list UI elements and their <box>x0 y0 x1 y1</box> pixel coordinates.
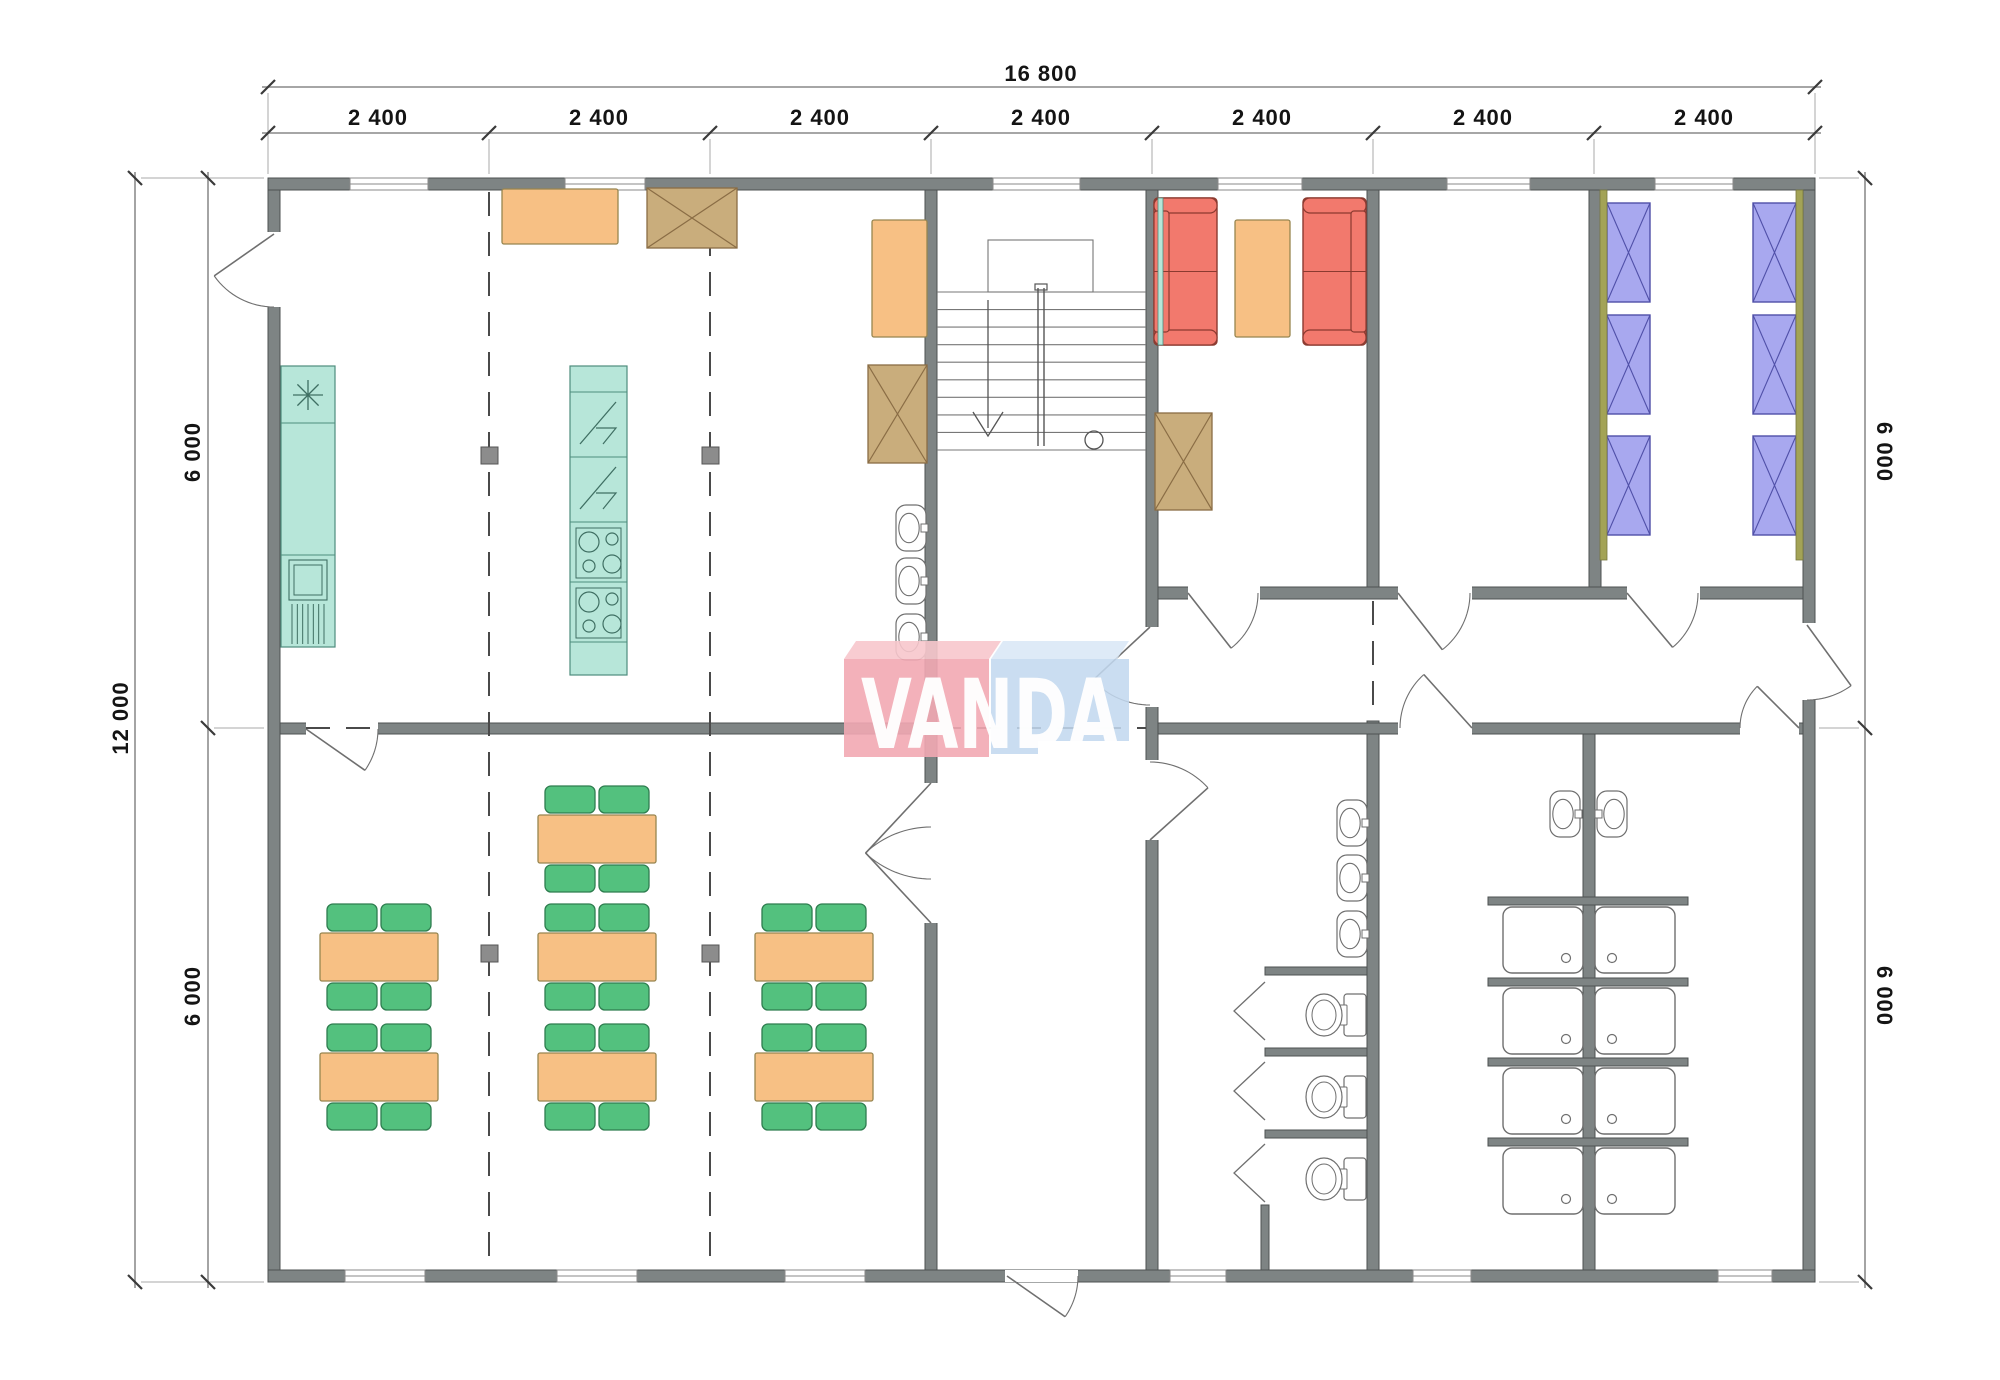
washbasin-tap <box>921 633 928 641</box>
dining-table <box>538 815 656 863</box>
chair <box>545 786 595 813</box>
chair <box>327 904 377 931</box>
door-opening <box>1740 721 1799 736</box>
dining-table <box>755 1053 873 1101</box>
kitchen-unit <box>570 366 627 675</box>
wall <box>1488 1138 1688 1146</box>
door-opening <box>1144 760 1160 840</box>
headboard-strip <box>1600 190 1607 560</box>
floor-plan-canvas: VANDA 16 800 2 400 2 400 2 400 2 400 2 4… <box>0 0 2000 1380</box>
grid-axis-marker <box>702 945 719 962</box>
shower-tray <box>1503 1148 1583 1214</box>
shower-tray <box>1595 988 1675 1054</box>
shower-tray <box>1595 1068 1675 1134</box>
watermark-block-blue-top <box>991 641 1129 659</box>
chair <box>816 1103 866 1130</box>
washbasin-tap <box>921 524 928 532</box>
washbasin-tap <box>1595 810 1602 818</box>
washbasin-tap <box>1362 930 1369 938</box>
dining-table <box>320 933 438 981</box>
wall <box>268 190 280 1270</box>
shower-tray <box>1503 907 1583 973</box>
shower-tray <box>1503 988 1583 1054</box>
washbasin-tap <box>1362 874 1369 882</box>
dim-bay-6: 2 400 <box>1453 105 1513 131</box>
door-opening <box>1144 627 1160 707</box>
table <box>872 220 927 337</box>
chair <box>599 865 649 892</box>
dim-bay-5: 2 400 <box>1232 105 1292 131</box>
dim-left-bottom-half: 6 000 <box>180 966 206 1026</box>
wall <box>1488 897 1688 905</box>
door-opening <box>1398 721 1472 736</box>
chair <box>816 983 866 1010</box>
grid-axis-marker <box>702 447 719 464</box>
dining-table <box>755 933 873 981</box>
dim-bay-2: 2 400 <box>569 105 629 131</box>
dim-bay-7: 2 400 <box>1674 105 1734 131</box>
wall <box>1265 1130 1367 1138</box>
dim-left-top-half: 6 000 <box>180 422 206 482</box>
shower-tray <box>1503 1068 1583 1134</box>
shower-tray <box>1595 907 1675 973</box>
chair <box>327 1103 377 1130</box>
grid-axis-marker <box>481 447 498 464</box>
wall <box>1367 190 1379 599</box>
wall <box>1261 1205 1269 1270</box>
chair <box>762 1103 812 1130</box>
door-opening <box>1005 1270 1078 1282</box>
dining-table <box>320 1053 438 1101</box>
chair <box>599 1103 649 1130</box>
dining-table <box>538 1053 656 1101</box>
washbasin-tap <box>921 577 928 585</box>
chair <box>545 983 595 1010</box>
dim-total-width: 16 800 <box>1004 61 1077 87</box>
wall <box>1146 190 1158 1270</box>
wall <box>1265 1048 1367 1056</box>
wall <box>1367 721 1379 1270</box>
washbasin-tap <box>1362 819 1369 827</box>
wall <box>1583 733 1595 1270</box>
chair <box>816 1024 866 1051</box>
dim-total-height: 12 000 <box>108 681 134 754</box>
chair <box>545 904 595 931</box>
dim-bay-1: 2 400 <box>348 105 408 131</box>
floor-plan-drawing: VANDA <box>0 0 2000 1380</box>
table <box>502 189 618 244</box>
wall <box>1265 967 1367 975</box>
table <box>1235 220 1290 337</box>
door-opening <box>266 232 282 307</box>
chair <box>762 983 812 1010</box>
chair <box>327 1024 377 1051</box>
chair <box>545 1024 595 1051</box>
watermark-block-pink-top <box>844 641 1001 659</box>
wall <box>1589 190 1601 599</box>
washbasin-tap <box>1575 810 1582 818</box>
wall <box>1158 723 1803 734</box>
chair <box>762 1024 812 1051</box>
dim-bay-4: 2 400 <box>1011 105 1071 131</box>
chair <box>545 1103 595 1130</box>
door-opening <box>1188 585 1260 601</box>
chair <box>599 1024 649 1051</box>
door-opening <box>923 783 939 923</box>
watermark-text: VANDA <box>861 659 1119 771</box>
chair <box>816 904 866 931</box>
wall-strip <box>1158 198 1163 345</box>
dim-right-bottom-half: 6 000 <box>1871 966 1897 1026</box>
chair <box>599 983 649 1010</box>
door-leaf <box>214 234 274 276</box>
chair <box>381 1024 431 1051</box>
door-opening <box>1627 585 1700 601</box>
door-swing-arc <box>214 276 274 307</box>
chair <box>599 904 649 931</box>
chair <box>327 983 377 1010</box>
chair <box>599 786 649 813</box>
grid-axis-marker <box>481 945 498 962</box>
wall <box>1488 978 1688 986</box>
shower-tray <box>1595 1148 1675 1214</box>
chair <box>545 865 595 892</box>
headboard-strip <box>1796 190 1803 560</box>
wall <box>1488 1058 1688 1066</box>
chair <box>762 904 812 931</box>
chair <box>381 983 431 1010</box>
chair <box>381 904 431 931</box>
wall <box>1803 190 1815 1270</box>
dim-right-top-half: 6 000 <box>1871 422 1897 482</box>
dim-bay-3: 2 400 <box>790 105 850 131</box>
dining-table <box>538 933 656 981</box>
door-opening <box>1398 585 1472 601</box>
chair <box>381 1103 431 1130</box>
